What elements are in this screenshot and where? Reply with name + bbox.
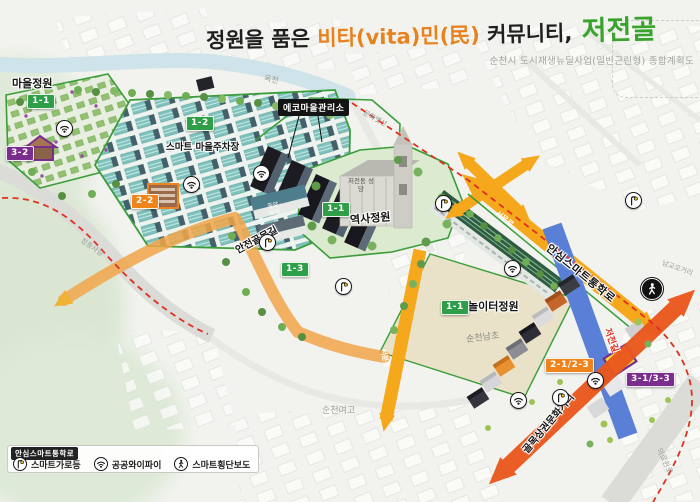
badge-safe-alley: 1-3 xyxy=(281,262,309,277)
badge-smart-parking: 1-2 xyxy=(186,116,214,131)
title-prefix: 정원을 품은 xyxy=(206,26,318,52)
streetlight-icon xyxy=(435,195,452,212)
streetlight-icon xyxy=(625,192,642,209)
badge-village-garden: 1-1 xyxy=(27,94,55,109)
badge-playground-garden: 1-1 xyxy=(441,300,469,315)
title-highlight: 비타(vita)민(民) xyxy=(317,23,480,50)
dark-building-small xyxy=(196,76,214,92)
legend-item-crosswalk: 스마트횡단보도 xyxy=(174,457,250,471)
label-eco-center: 에코마을관리소 xyxy=(278,99,349,116)
legend-item-label: 공공와이파이 xyxy=(112,458,162,471)
title-middle: 커뮤니티, xyxy=(480,21,573,47)
badge-history-garden: 1-1 xyxy=(322,202,350,217)
title-brand: 저전골 xyxy=(572,14,657,47)
badge-anchor-building: 2-2 xyxy=(131,194,159,209)
streetlight-icon xyxy=(552,389,569,406)
label-girls-high-school: 순천여고 xyxy=(322,403,355,416)
crosswalk-icon xyxy=(641,278,663,300)
label-playground-garden: 놀이터정원 xyxy=(468,298,519,314)
legend-item-label: 스마트횡단보도 xyxy=(192,458,250,471)
legend-item-label: 스마트가로등 xyxy=(31,458,81,471)
label-stream: 옥천 xyxy=(263,73,279,86)
wifi-icon xyxy=(183,176,200,193)
streetlight-icon xyxy=(259,234,276,251)
legend-item-wifi: 공공와이파이 xyxy=(94,457,162,471)
legend-item-streetlight: 스마트가로등 xyxy=(13,457,81,471)
badge-commercial: 2-1/2-3 xyxy=(545,358,594,373)
label-cathedral: 저전동 성당 xyxy=(348,178,374,194)
wifi-icon xyxy=(253,165,270,182)
wifi-icon xyxy=(94,457,108,471)
wifi-icon xyxy=(510,392,527,409)
wifi-icon xyxy=(504,260,521,277)
wifi-icon xyxy=(587,372,604,389)
legend: 안심스마트통학로 스마트가로등 공공와이파이 스마트횡단보도 xyxy=(7,445,259,473)
streetlight-icon xyxy=(13,457,27,471)
wifi-icon xyxy=(56,120,73,137)
masterplan-map: 정원을 품은 비타(vita)민(民) 커뮤니티, 저전골 순천시 도시재생뉴딜… xyxy=(0,0,700,502)
crosswalk-icon xyxy=(174,457,188,471)
badge-shops: 3-1/3-3 xyxy=(626,372,675,387)
label-smart-parking: 스마트 마을주차장 xyxy=(166,139,239,153)
label-village-garden: 마을정원 xyxy=(12,75,52,91)
streetlight-icon xyxy=(335,278,352,295)
page-subtitle: 순천시 도시재생뉴딜사업(일반근린형) 종합계획도 xyxy=(490,53,695,67)
badge-house-3-2: 3-2 xyxy=(6,146,34,161)
legend-items: 스마트가로등 공공와이파이 스마트횡단보도 xyxy=(13,457,263,471)
